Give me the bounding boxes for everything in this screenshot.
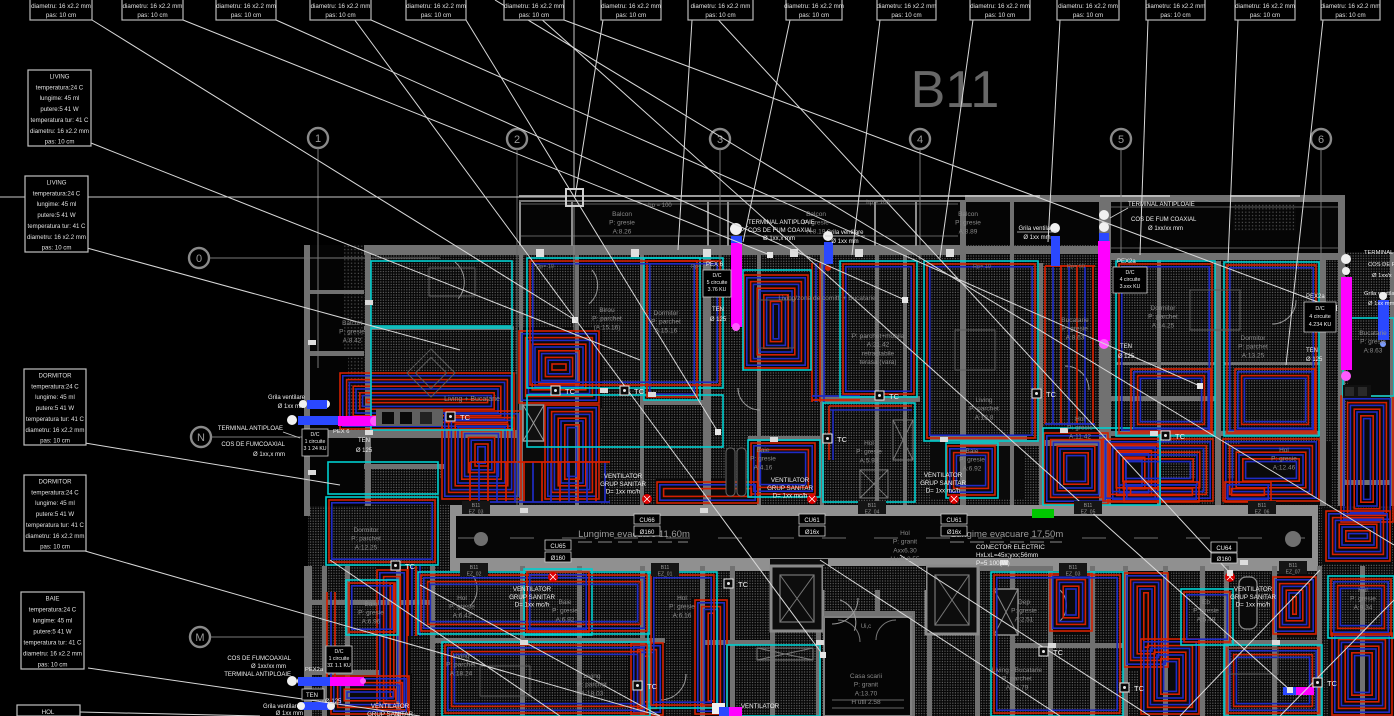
svg-text:Living: Living: [453, 653, 470, 660]
svg-text:temperatura tur: 41 C: temperatura tur: 41 C: [24, 640, 83, 647]
svg-text:diametru: 16 x2.2 mm: diametru: 16 x2.2 mm: [504, 3, 564, 10]
svg-text:Living/zona de comitti + Bucat: Living/zona de comitti + Bucatarie: [778, 295, 876, 302]
svg-text:TEN: TEN: [358, 438, 370, 444]
svg-text:Rp= 10: Rp= 10: [973, 264, 991, 270]
svg-text:Baie: Baie: [364, 601, 377, 608]
svg-text:P: parchet: P: parchet: [446, 662, 476, 669]
svg-text:CONECTOR ELECTRIC: CONECTOR ELECTRIC: [976, 544, 1045, 551]
svg-text:A:13.25: A:13.25: [1242, 352, 1265, 359]
svg-text:P: gresie: P: gresie: [1067, 425, 1093, 432]
svg-text:diametru: 16 x2.2 mm: diametru: 16 x2.2 mm: [1235, 3, 1295, 10]
svg-text:Axx6.30: Axx6.30: [893, 547, 917, 554]
svg-text:pas: 10 cm: pas: 10 cm: [1250, 12, 1280, 19]
svg-text:Hol: Hol: [864, 440, 874, 447]
svg-text:B11: B11: [911, 61, 1000, 119]
svg-text:COS DE FUM C: COS DE FUM C: [1368, 262, 1394, 268]
svg-text:P: gresie: P: gresie: [1193, 608, 1219, 615]
svg-text:putere:5 41 W: putere:5 41 W: [36, 405, 75, 412]
svg-text:A:18.8: A:18.8: [975, 414, 994, 421]
svg-text:D/C: D/C: [1315, 306, 1324, 312]
svg-text:A:14.25: A:14.25: [1152, 322, 1175, 329]
svg-text:COS DE FUM COAXIAL: COS DE FUM COAXIAL: [748, 228, 814, 234]
svg-text:Rp= 50: Rp= 50: [1067, 264, 1085, 270]
svg-text:Hol: Hol: [1358, 587, 1368, 594]
svg-text:P: gresie: P: gresie: [1350, 596, 1376, 603]
svg-text:P: parchet: P: parchet: [351, 536, 381, 543]
svg-text:A:21.42: A:21.42: [867, 342, 890, 349]
svg-text:Ø 1xx/x: Ø 1xx/x: [1372, 273, 1392, 279]
svg-text:1: 1: [315, 133, 321, 145]
svg-text:Hol: Hol: [1279, 447, 1289, 454]
svg-text:Ø 1xx/xx mm: Ø 1xx/xx mm: [251, 664, 286, 670]
svg-text:TC: TC: [405, 562, 416, 571]
svg-text:pas: 10 cm: pas: 10 cm: [705, 12, 735, 19]
svg-text:Ø 1xx mm: Ø 1xx mm: [1023, 235, 1050, 241]
svg-text:HOL: HOL: [42, 709, 55, 716]
svg-text:Ø 125: Ø 125: [710, 317, 727, 323]
svg-text:D/C: D/C: [1126, 270, 1135, 276]
svg-text:COS DE FUMCOAXIAL: COS DE FUMCOAXIAL: [227, 656, 291, 662]
svg-text:A:18.24: A:18.24: [450, 670, 473, 677]
svg-text:Balcon: Balcon: [612, 211, 632, 218]
svg-text:lungime: 45 ml: lungime: 45 ml: [35, 394, 75, 401]
svg-text:lungime: 45 ml: lungime: 45 ml: [37, 201, 77, 208]
svg-text:A:6.16: A:6.16: [673, 612, 692, 619]
svg-text:PEX 6: PEX 6: [333, 429, 349, 435]
svg-text:P: gresie: P: gresie: [339, 329, 365, 336]
svg-text:EZ_04: EZ_04: [865, 510, 880, 516]
svg-text:A:22.79: A:22.79: [1006, 684, 1029, 691]
svg-text:P: gresie: P: gresie: [1271, 456, 1297, 463]
svg-text:Dormitor: Dormitor: [354, 527, 380, 534]
svg-text:Ø 1xx mm: Ø 1xx mm: [1368, 301, 1394, 307]
svg-text:pas: 10 cm: pas: 10 cm: [421, 12, 451, 19]
svg-text:5: 5: [1118, 134, 1124, 146]
svg-text:P: gresie: P: gresie: [358, 610, 384, 617]
svg-text:A:6.96: A:6.96: [362, 618, 381, 625]
svg-text:P: gresie: P: gresie: [609, 220, 635, 227]
svg-text:TC: TC: [1134, 684, 1145, 693]
svg-text:pas: 10 cm: pas: 10 cm: [325, 12, 355, 19]
svg-text:TC: TC: [889, 392, 900, 401]
svg-text:GRUP SANITAR: GRUP SANITAR: [1230, 594, 1276, 601]
svg-text:diametru: 16 x2.2 mm: diametru: 16 x2.2 mm: [30, 128, 89, 135]
svg-text:D/C: D/C: [311, 432, 320, 438]
svg-text:TERMINAL ANTIPLOAIE: TERMINAL ANTIPLOAIE: [748, 220, 815, 226]
svg-text:P: parchet: P: parchet: [1002, 676, 1032, 683]
svg-text:pas: 10 cm: pas: 10 cm: [616, 12, 646, 19]
svg-text:Hol: Hol: [457, 595, 467, 602]
svg-text:P: parchet: P: parchet: [969, 406, 999, 413]
svg-text:4 circuite: 4 circuite: [1309, 314, 1331, 320]
svg-text:P: gresie: P: gresie: [856, 449, 882, 456]
svg-text:pas: 10 cm: pas: 10 cm: [40, 544, 70, 551]
svg-text:EZ_02: EZ_02: [467, 572, 482, 578]
svg-text:Ø 1xx mm: Ø 1xx mm: [276, 711, 303, 716]
svg-text:GRUP SANITAR: GRUP SANITAR: [767, 485, 813, 492]
svg-text:Grila ventilare: Grila ventilare: [1364, 291, 1394, 297]
svg-text:diametru: 16 x2.2 mm: diametru: 16 x2.2 mm: [123, 3, 183, 10]
svg-text:Balcon: Balcon: [806, 211, 826, 218]
svg-text:Dormitor: Dormitor: [1241, 335, 1267, 342]
svg-text:Ø160: Ø160: [640, 530, 655, 536]
svg-text:Baie: Baie: [965, 448, 978, 455]
svg-text:GRUP SANITAR: GRUP SANITAR: [600, 481, 646, 488]
svg-text:A:6.42: A:6.42: [453, 612, 472, 619]
svg-text:diametru: 16 x2.2 mm: diametru: 16 x2.2 mm: [406, 3, 466, 10]
svg-text:VENTILATOR: VENTILATOR: [371, 703, 410, 710]
svg-text:temperatura tur: 41 C: temperatura tur: 41 C: [31, 117, 90, 124]
svg-text:EZ_06: EZ_06: [1255, 510, 1270, 516]
svg-text:A:6.92: A:6.92: [556, 616, 575, 623]
svg-text:P: gresie: P: gresie: [669, 604, 695, 611]
svg-text:P: gresie: P: gresie: [1011, 608, 1037, 615]
svg-text:DORMITOR: DORMITOR: [38, 478, 72, 485]
svg-text:diametru: 16 x2.2 mm: diametru: 16 x2.2 mm: [26, 427, 85, 434]
svg-text:CU61: CU61: [804, 518, 820, 524]
svg-text:Living: Living: [584, 673, 601, 680]
svg-text:diametru: 16 x2.2 mm: diametru: 16 x2.2 mm: [26, 533, 85, 540]
svg-text:B11: B11: [868, 503, 877, 509]
svg-text:Ø 125: Ø 125: [325, 699, 342, 705]
svg-text:A:8.26: A:8.26: [613, 228, 632, 235]
svg-text:N: N: [197, 432, 205, 444]
svg-text:TC: TC: [460, 413, 471, 422]
svg-text:P: gresie: P: gresie: [1062, 326, 1088, 333]
svg-text:diametru: 16 x2.2 mm: diametru: 16 x2.2 mm: [311, 3, 371, 10]
svg-text:pas: 10 cm: pas: 10 cm: [42, 245, 72, 252]
svg-text:P: gresie: P: gresie: [552, 608, 578, 615]
svg-text:B11: B11: [1289, 563, 1298, 569]
svg-text:P: gresie: P: gresie: [449, 604, 475, 611]
svg-text:Ø 1xx mm: Ø 1xx mm: [278, 404, 305, 410]
svg-text:4: 4: [917, 134, 923, 146]
svg-text:diametru: 16 x2.2 mm: diametru: 16 x2.2 mm: [1058, 3, 1118, 10]
svg-text:pas: 10 cm: pas: 10 cm: [985, 12, 1015, 19]
svg-text:diametru: 16 x2.2 mm: diametru: 16 x2.2 mm: [1146, 3, 1206, 10]
svg-text:H util 2.55: H util 2.55: [890, 556, 920, 563]
svg-text:Ø 1xx,x mm: Ø 1xx,x mm: [763, 236, 795, 242]
svg-text:TC: TC: [837, 435, 848, 444]
svg-text:diametru: 16 x2.2 mm: diametru: 16 x2.2 mm: [877, 3, 937, 10]
svg-text:diametru: 16 x2.2 mm: diametru: 16 x2.2 mm: [31, 3, 91, 10]
svg-text:temperatura:24 C: temperatura:24 C: [29, 607, 77, 614]
svg-text:Balcon: Balcon: [958, 211, 978, 218]
svg-text:diametru: 16 x2.2 mm: diametru: 16 x2.2 mm: [691, 3, 751, 10]
svg-text:TEN: TEN: [306, 693, 318, 699]
svg-text:temperatura tur: 41 C: temperatura tur: 41 C: [26, 416, 85, 423]
svg-text:temperatura tur: 41 C: temperatura tur: 41 C: [26, 522, 85, 529]
svg-text:P: gresie: P: gresie: [959, 457, 985, 464]
svg-text:P: parchet: P: parchet: [577, 682, 607, 689]
svg-text:A:4.16: A:4.16: [754, 464, 773, 471]
svg-text:A:5.93: A:5.93: [860, 457, 879, 464]
svg-text:Ø 125: Ø 125: [356, 448, 373, 454]
svg-text:HxLxL=45x;yxx;56mm: HxLxL=45x;yxx;56mm: [976, 552, 1038, 559]
svg-text:Bucatarie: Bucatarie: [1359, 330, 1387, 337]
svg-text:Hol: Hol: [677, 595, 687, 602]
svg-text:Grila ventilare: Grila ventilare: [268, 395, 306, 401]
svg-text:EZ_03: EZ_03: [469, 510, 484, 516]
svg-text:diametru: 16 x2.2 mm: diametru: 16 x2.2 mm: [970, 3, 1030, 10]
svg-text:PEX2a: PEX2a: [305, 667, 324, 673]
svg-text:A:8.63: A:8.63: [1066, 334, 1085, 341]
svg-text:PEX2a: PEX2a: [1117, 259, 1136, 265]
svg-text:PEX 6: PEX 6: [706, 262, 724, 268]
svg-text:putere:5 41 W: putere:5 41 W: [36, 511, 75, 518]
svg-text:GRUP SANITAR: GRUP SANITAR: [367, 711, 413, 716]
svg-text:VENTILATOR: VENTILATOR: [604, 473, 643, 480]
svg-text:Ø 1xx mm: Ø 1xx mm: [831, 239, 858, 245]
svg-text:diametru: 16 x2.2 mm: diametru: 16 x2.2 mm: [27, 234, 86, 241]
svg-text:A:5.49: A:5.49: [1197, 616, 1216, 623]
svg-text:VENTILATOR: VENTILATOR: [741, 703, 780, 710]
svg-text:lungime: 45 ml: lungime: 45 ml: [35, 500, 75, 507]
svg-text:0: 0: [196, 253, 202, 265]
svg-text:Ø160: Ø160: [551, 556, 566, 562]
svg-text:D= 1xx mc/h: D= 1xx mc/h: [606, 489, 641, 496]
svg-text:Eb: Eb: [1202, 599, 1210, 606]
svg-text:A:15.16: A:15.16: [655, 327, 678, 334]
svg-text:M: M: [195, 632, 204, 644]
svg-text:D/C: D/C: [335, 649, 344, 655]
svg-text:Birou: Birou: [599, 307, 615, 314]
svg-text:A:8.63: A:8.63: [1364, 347, 1383, 354]
svg-text:Grila ventilare: Grila ventilare: [826, 230, 864, 236]
svg-text:GRUP SANITAR: GRUP SANITAR: [920, 480, 966, 487]
svg-text:D= 1xx mc/h: D= 1xx mc/h: [515, 602, 550, 609]
svg-text:Bucatarie: Bucatarie: [1061, 317, 1089, 324]
svg-text:A:12.46: A:12.46: [1273, 464, 1296, 471]
svg-text:3Σ 1.1 KU: 3Σ 1.1 KU: [327, 663, 351, 669]
svg-text:A:8.42: A:8.42: [343, 337, 362, 344]
svg-text:3: 3: [717, 134, 723, 146]
svg-text:temperatura:24 C: temperatura:24 C: [33, 190, 81, 197]
svg-text:pas: 10 cm: pas: 10 cm: [891, 12, 921, 19]
svg-text:TC: TC: [1175, 432, 1186, 441]
svg-text:TC: TC: [1046, 390, 1057, 399]
svg-text:VENTILATOR: VENTILATOR: [924, 472, 963, 479]
svg-text:A:11.42: A:11.42: [1069, 433, 1091, 440]
svg-text:Ø 1xx/xx mm: Ø 1xx/xx mm: [1148, 226, 1183, 232]
svg-text:Ø 125: Ø 125: [1118, 354, 1135, 360]
svg-text:TC: TC: [647, 682, 658, 691]
svg-text:Ø160: Ø160: [1217, 557, 1232, 563]
svg-text:lungime: 45 ml: lungime: 45 ml: [33, 618, 73, 625]
svg-text:putere:5 41 W: putere:5 41 W: [37, 212, 76, 219]
svg-text:pas: 10 cm: pas: 10 cm: [46, 12, 76, 19]
svg-text:Hol: Hol: [1075, 416, 1085, 423]
svg-text:B11: B11: [1069, 565, 1078, 571]
svg-text:P: granit: P: granit: [854, 682, 878, 689]
svg-text:B11: B11: [1084, 503, 1093, 509]
svg-text:Dormitor: Dormitor: [654, 310, 680, 317]
svg-text:P: parchet: P: parchet: [1238, 344, 1268, 351]
svg-text:pas: 10 cm: pas: 10 cm: [1160, 12, 1190, 19]
svg-text:putere:5 41 W: putere:5 41 W: [33, 629, 72, 636]
svg-text:P=5 100(W): P=5 100(W): [976, 560, 1010, 567]
svg-text:TC: TC: [634, 387, 645, 396]
svg-text:A:8.89: A:8.89: [959, 228, 978, 235]
svg-text:CU66: CU66: [639, 518, 655, 524]
svg-text:pas: 10 cm: pas: 10 cm: [519, 12, 549, 19]
svg-text:EZ_01: EZ_01: [658, 572, 673, 578]
svg-text:P: gresie: P: gresie: [955, 220, 981, 227]
svg-text:TC: TC: [1327, 679, 1338, 688]
svg-text:B11: B11: [470, 565, 479, 571]
svg-text:CU61: CU61: [946, 518, 962, 524]
svg-text:B11: B11: [1258, 503, 1267, 509]
svg-text:diametru: 16 x2.2 mm: diametru: 16 x2.2 mm: [784, 3, 844, 10]
svg-text:D= 1xx mc/h: D= 1xx mc/h: [926, 488, 961, 495]
svg-text:2: 2: [514, 134, 520, 146]
svg-text:P: parchet: P: parchet: [592, 316, 622, 323]
svg-text:diametru: 16 x2.2 mm: diametru: 16 x2.2 mm: [1321, 3, 1381, 10]
svg-text:6: 6: [1318, 134, 1324, 146]
svg-text:B11: B11: [661, 565, 670, 571]
svg-text:Hol: Hol: [900, 530, 910, 537]
svg-text:hp = 100: hp = 100: [866, 200, 890, 206]
svg-text:Baie: Baie: [756, 447, 769, 454]
svg-text:TERMINAL ANTIPLOAIE: TERMINAL ANTIPLOAIE: [1128, 202, 1195, 208]
svg-text:Ø16x: Ø16x: [805, 530, 819, 536]
svg-text:VENTILATOR: VENTILATOR: [1234, 586, 1273, 593]
svg-text:CU65: CU65: [550, 544, 566, 550]
svg-text:TERMINAL ANTIPLOAIE: TERMINAL ANTIPLOAIE: [224, 672, 291, 678]
svg-text:pas: 10 cm: pas: 10 cm: [45, 139, 75, 146]
svg-text:pas: 10 cm: pas: 10 cm: [40, 438, 70, 445]
svg-text:COS DE FUMCOAXIAL: COS DE FUMCOAXIAL: [221, 442, 285, 448]
svg-text:Balcon: Balcon: [342, 320, 362, 327]
svg-text:BAIE: BAIE: [46, 596, 60, 603]
svg-text:TEN: TEN: [1120, 344, 1132, 350]
svg-text:EZ_07: EZ_07: [1286, 570, 1301, 576]
svg-text:TC: TC: [565, 387, 576, 396]
svg-text:diametru: 16 x2.2 mm: diametru: 16 x2.2 mm: [23, 651, 82, 658]
svg-text:COS DE FUM COAXIAL: COS DE FUM COAXIAL: [1131, 217, 1197, 223]
svg-text:LIVING: LIVING: [50, 73, 70, 80]
svg-text:TEN: TEN: [712, 307, 724, 313]
svg-text:pas: 10 cm: pas: 10 cm: [799, 12, 829, 19]
svg-text:A:2.51: A:2.51: [1015, 616, 1034, 623]
svg-text:diametru: 16 x2.2 mm: diametru: 16 x2.2 mm: [216, 3, 276, 10]
svg-text:PEX2a: PEX2a: [1306, 294, 1325, 300]
svg-text:pas: 10 cm: pas: 10 cm: [1335, 12, 1365, 19]
svg-text:D= 1xx mc/h: D= 1xx mc/h: [773, 493, 808, 500]
svg-text:Living: Living: [976, 397, 993, 404]
svg-text:4 circuite: 4 circuite: [1120, 277, 1141, 283]
svg-text:A:13.70: A:13.70: [855, 690, 878, 697]
svg-text:pas: 10 cm: pas: 10 cm: [38, 662, 68, 669]
svg-text:A:12.25: A:12.25: [355, 544, 378, 551]
svg-text:P: gresie: P: gresie: [750, 456, 776, 463]
svg-text:Baie: Baie: [558, 599, 571, 606]
svg-text:Casa scarii: Casa scarii: [850, 673, 882, 680]
svg-text:pas: 10 cm: pas: 10 cm: [137, 12, 167, 19]
svg-text:EZ_05: EZ_05: [1081, 510, 1096, 516]
svg-text:1 circuite: 1 circuite: [305, 439, 326, 445]
svg-text:1 circuite: 1 circuite: [329, 656, 350, 662]
svg-text:P: parchet: P: parchet: [1148, 314, 1178, 321]
svg-text:retractabile: retractabile: [862, 350, 895, 357]
svg-text:TC: TC: [1053, 648, 1064, 657]
svg-text:P: parchet: P: parchet: [651, 319, 681, 326]
svg-text:Ui,c: Ui,c: [861, 624, 871, 630]
svg-text:VENTILATOR: VENTILATOR: [771, 477, 810, 484]
svg-text:terasa (vara): terasa (vara): [860, 359, 897, 366]
svg-text:lungime: 45 ml: lungime: 45 ml: [40, 95, 80, 102]
svg-text:EZ_03: EZ_03: [1066, 572, 1081, 578]
svg-text:TC: TC: [738, 580, 749, 589]
svg-text:temperatura tur: 41 C: temperatura tur: 41 C: [28, 223, 87, 230]
svg-text:LIVING: LIVING: [47, 179, 67, 186]
svg-text:4.234 KU: 4.234 KU: [1309, 322, 1332, 328]
svg-text:D= 1xx mc/h: D= 1xx mc/h: [1236, 602, 1271, 609]
svg-text:hp = 100: hp = 100: [648, 203, 672, 209]
svg-text:(A:15.16): (A:15.16): [594, 324, 621, 331]
svg-text:pas: 10 cm: pas: 10 cm: [1073, 12, 1103, 19]
svg-text:Grila ventilare: Grila ventilare: [263, 704, 301, 710]
svg-text:A:9.34: A:9.34: [1354, 604, 1373, 611]
svg-text:putere:5 41 W: putere:5 41 W: [40, 106, 79, 113]
svg-text:Lungime evacuare 17,50m: Lungime evacuare 17,50m: [951, 529, 1064, 540]
svg-text:VENTILATOR: VENTILATOR: [513, 586, 552, 593]
svg-text:B11: B11: [472, 503, 481, 509]
svg-text:3 1 24 KU: 3 1 24 KU: [303, 446, 326, 452]
svg-text:P: gresie: P: gresie: [1360, 339, 1386, 346]
svg-text:DORMITOR: DORMITOR: [38, 372, 72, 379]
svg-text:pas: 10 cm: pas: 10 cm: [231, 12, 261, 19]
svg-text:A:18.03: A:18.03: [581, 690, 604, 697]
svg-text:diametru: 16 x2.2 mm: diametru: 16 x2.2 mm: [601, 3, 661, 10]
svg-text:D/C: D/C: [713, 273, 722, 279]
svg-text:GRUP SANITAR: GRUP SANITAR: [509, 594, 555, 601]
svg-text:Dep: Dep: [1018, 599, 1030, 606]
svg-text:5 circuite: 5 circuite: [707, 280, 728, 286]
svg-text:Living + Bucatarie: Living + Bucatarie: [444, 396, 500, 403]
svg-text:temperatura:24 C: temperatura:24 C: [31, 489, 79, 496]
svg-text:P: parchet+mobila: P: parchet+mobila: [852, 333, 905, 340]
svg-text:TERMINAL ANTIPLOAE: TERMINAL ANTIPLOAE: [218, 426, 283, 432]
svg-text:A:6.92: A:6.92: [963, 465, 982, 472]
svg-text:Rp= 10: Rp= 10: [536, 264, 554, 270]
svg-text:Living - Bucatarie: Living - Bucatarie: [992, 667, 1043, 674]
svg-text:Ø16x: Ø16x: [947, 530, 961, 536]
svg-text:temperatura:24 C: temperatura:24 C: [36, 84, 84, 91]
svg-text:3.76 KU: 3.76 KU: [708, 287, 727, 293]
svg-text:temperatura:24 C: temperatura:24 C: [31, 383, 79, 390]
svg-text:Grila ventilare: Grila ventilare: [1018, 226, 1056, 232]
svg-text:TEN: TEN: [1306, 348, 1318, 354]
svg-text:P: granit: P: granit: [893, 539, 917, 546]
svg-text:Ø 125: Ø 125: [1306, 357, 1323, 363]
svg-text:H util 2.58: H util 2.58: [851, 699, 881, 706]
svg-text:TERMINAL ANT: TERMINAL ANT: [1364, 250, 1394, 256]
svg-text:Dormitor: Dormitor: [1151, 305, 1177, 312]
svg-text:3.xxx KU: 3.xxx KU: [1120, 284, 1141, 290]
svg-text:Ø 1xx,x mm: Ø 1xx,x mm: [253, 452, 285, 458]
svg-text:CU64: CU64: [1216, 546, 1232, 552]
